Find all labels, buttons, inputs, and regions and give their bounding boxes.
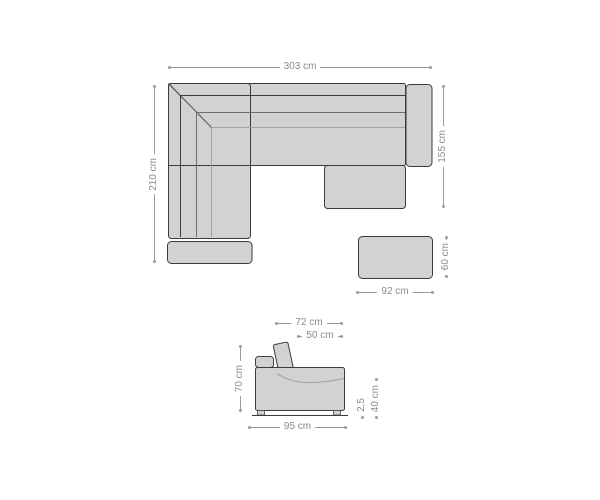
dimension-line	[315, 427, 344, 428]
dimension-label: 155 cm	[438, 126, 448, 167]
side-foot-right	[334, 411, 341, 416]
dimension-line	[278, 323, 291, 324]
dimension-line	[154, 194, 155, 260]
dimension-label: 210 cm	[149, 154, 159, 195]
dimension-total-depth: 72 cm	[275, 318, 343, 328]
dimension-line	[320, 67, 429, 68]
dimension-line	[240, 348, 241, 361]
dimension-line	[240, 396, 241, 409]
side-foot-left	[258, 411, 265, 416]
top-right-armrest	[406, 85, 432, 167]
dimension-line	[154, 88, 155, 154]
dimension-label: 60 cm	[441, 239, 451, 274]
dimension-base-width: 95 cm	[248, 422, 347, 432]
dimension-seat-height: 40 cm	[371, 378, 381, 414]
sofa-dimension-diagram: 303 cm 210 cm 155 cm 60 cm 92 cm 72 cm	[0, 0, 600, 500]
dimension-right-depth: 155 cm	[438, 85, 448, 208]
dimension-line	[443, 88, 444, 126]
dimension-end-dot-icon	[442, 205, 445, 208]
dimension-end-dot-icon	[340, 335, 343, 338]
dimension-end-dot-icon	[429, 66, 432, 69]
sofa-side-view	[252, 342, 348, 416]
dimension-end-dot-icon	[361, 416, 364, 419]
dimension-label: 303 cm	[280, 62, 321, 72]
dimension-line	[171, 67, 280, 68]
sofa-top-view	[168, 84, 433, 279]
dimension-end-dot-icon	[445, 275, 448, 278]
dimension-line	[413, 292, 431, 293]
dimension-end-dot-icon	[340, 322, 343, 325]
side-body	[256, 368, 345, 411]
dimension-line	[327, 323, 340, 324]
dimension-line	[359, 292, 377, 293]
dimension-label: 40 cm	[371, 381, 381, 416]
top-right-lounger	[325, 166, 406, 209]
dimension-label: 70 cm	[235, 361, 245, 396]
dimension-label: 95 cm	[280, 422, 315, 432]
dimension-label: 50 cm	[302, 331, 337, 341]
dimension-label: 92 cm	[377, 287, 412, 297]
dimension-label: 72 cm	[291, 318, 326, 328]
dimension-end-dot-icon	[344, 426, 347, 429]
side-armrest	[256, 357, 274, 368]
dimension-total-height: 70 cm	[235, 345, 245, 412]
dimension-end-dot-icon	[375, 416, 378, 419]
dimension-left-depth: 210 cm	[149, 85, 159, 263]
dimension-end-dot-icon	[239, 409, 242, 412]
dimension-ground-clearance: 2,5	[357, 394, 367, 416]
dimension-end-dot-icon	[431, 291, 434, 294]
dimension-stool-width: 92 cm	[356, 287, 434, 297]
top-stool	[359, 237, 433, 279]
dimension-line	[251, 427, 280, 428]
dimension-label: 2,5	[357, 394, 367, 416]
dimension-total-width: 303 cm	[168, 62, 432, 72]
dimension-end-dot-icon	[153, 260, 156, 263]
top-chaise-front-armrest	[168, 242, 253, 264]
dimension-line	[443, 167, 444, 205]
dimension-stool-depth: 60 cm	[441, 236, 451, 278]
dimension-seat-depth: 50 cm	[297, 331, 343, 341]
